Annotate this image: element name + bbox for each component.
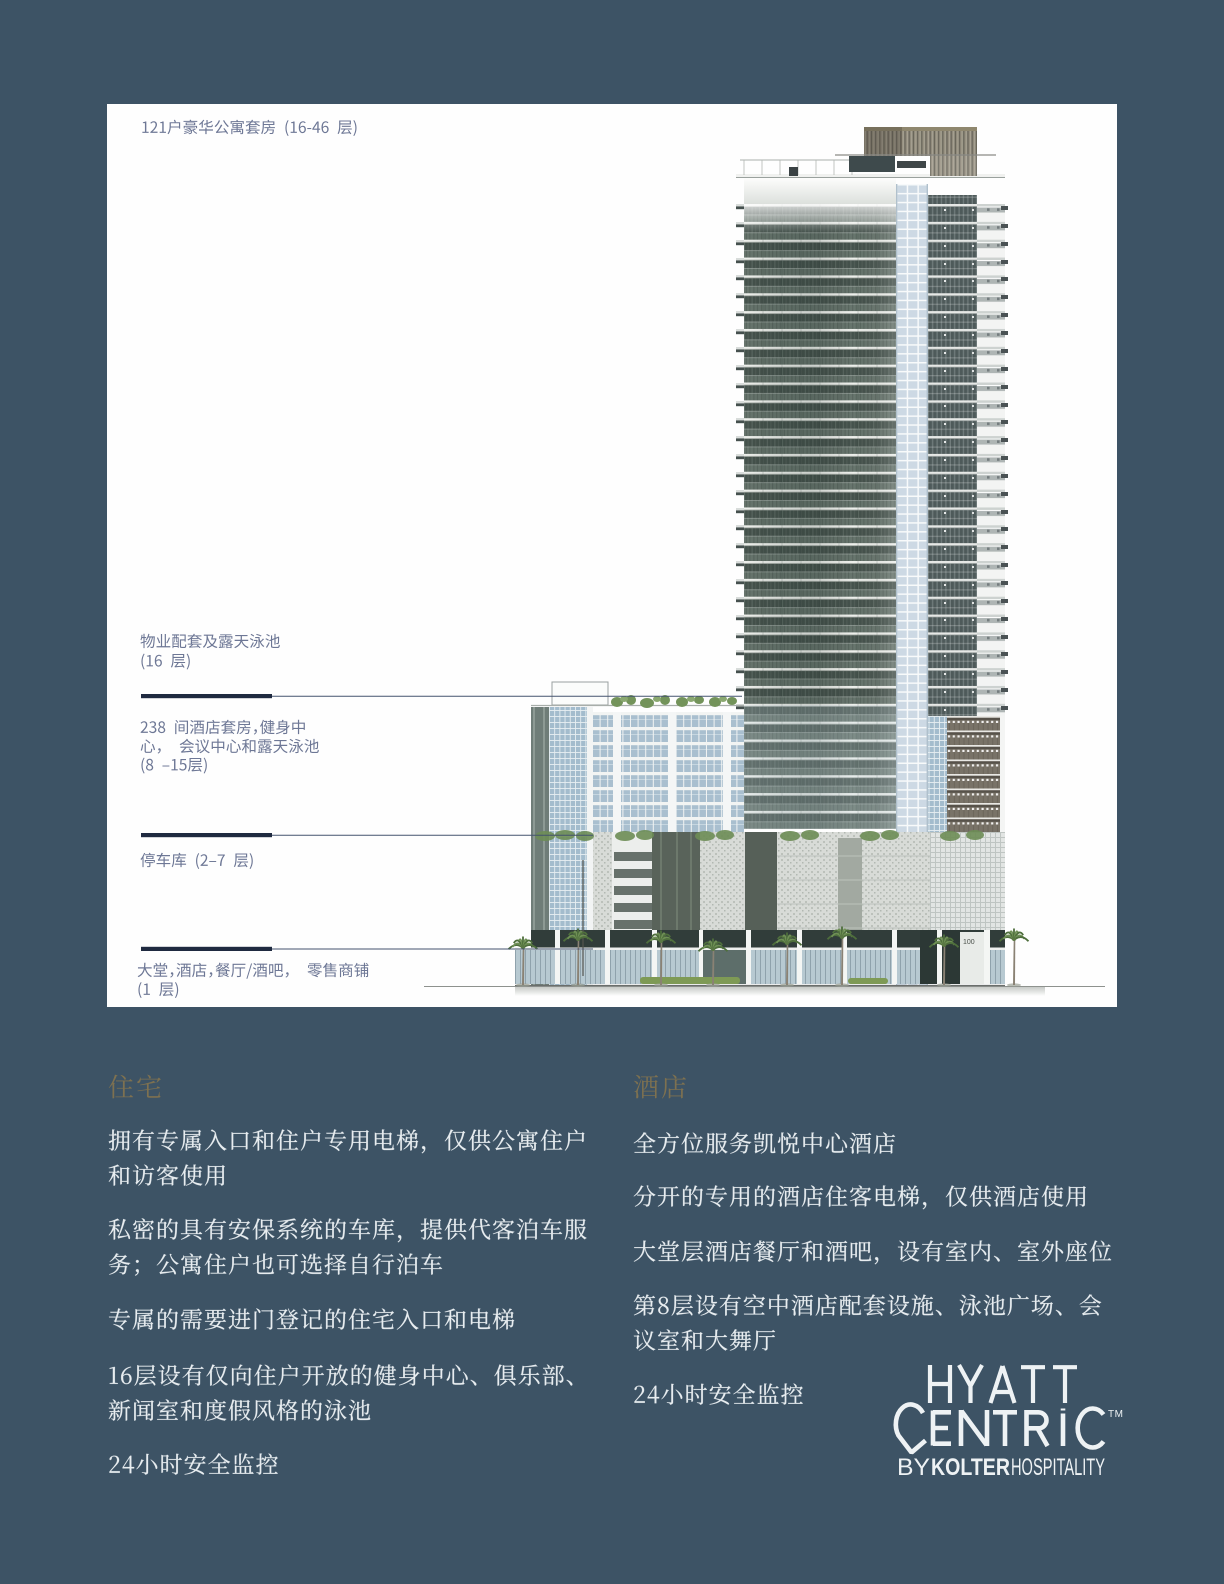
- svg-text:TM: TM: [1108, 1409, 1123, 1420]
- svg-text:BY: BY: [897, 1454, 930, 1481]
- svg-text:KOLTER: KOLTER: [931, 1454, 1010, 1481]
- svg-text:HOSPITALITY: HOSPITALITY: [1011, 1454, 1105, 1481]
